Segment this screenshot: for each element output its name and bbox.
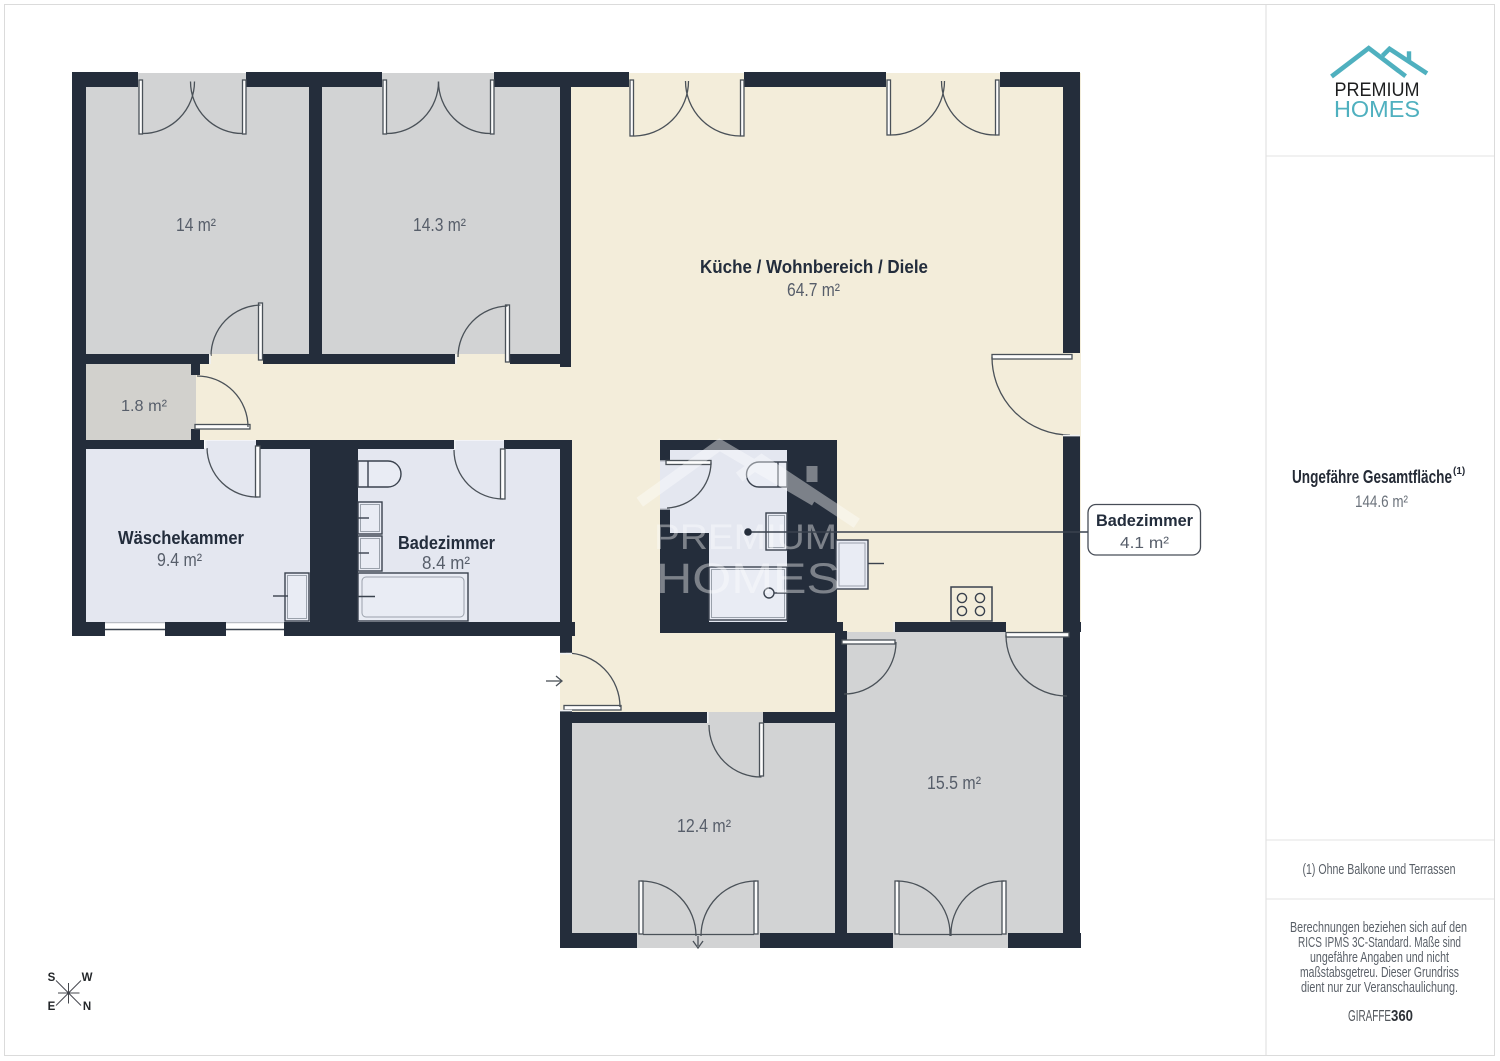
svg-text:12.4 m²: 12.4 m²	[677, 816, 731, 836]
svg-text:4.1 m²: 4.1 m²	[1120, 535, 1170, 552]
svg-text:ungefähre Angaben und nicht: ungefähre Angaben und nicht	[1310, 950, 1449, 966]
svg-text:dient nur zur Veranschaulichun: dient nur zur Veranschaulichung.	[1301, 980, 1458, 996]
svg-text:Berechnungen beziehen sich auf: Berechnungen beziehen sich auf den	[1290, 920, 1467, 936]
svg-text:Küche / Wohnbereich / Diele: Küche / Wohnbereich / Diele	[700, 256, 928, 277]
svg-text:HOMES: HOMES	[1334, 96, 1420, 122]
svg-text:(1) Ohne Balkone und Terrassen: (1) Ohne Balkone und Terrassen	[1303, 861, 1456, 878]
svg-text:Badezimmer: Badezimmer	[1096, 511, 1193, 530]
svg-text:144.6 m²: 144.6 m²	[1355, 492, 1408, 511]
svg-text:64.7 m²: 64.7 m²	[787, 280, 840, 300]
svg-text:360: 360	[1391, 1008, 1413, 1025]
svg-text:Ungefähre Gesamtfläche: Ungefähre Gesamtfläche	[1292, 467, 1452, 487]
svg-text:9.4 m²: 9.4 m²	[157, 550, 202, 570]
svg-text:(1): (1)	[1453, 466, 1465, 477]
svg-text:Wäschekammer: Wäschekammer	[118, 527, 244, 548]
svg-text:W: W	[82, 972, 93, 984]
svg-text:maßstabsgetreu. Dieser Grundri: maßstabsgetreu. Dieser Grundriss	[1300, 965, 1459, 981]
svg-text:PREMIUM: PREMIUM	[654, 518, 837, 557]
svg-text:Badezimmer: Badezimmer	[398, 532, 495, 553]
svg-text:N: N	[83, 1001, 91, 1013]
svg-text:E: E	[48, 1001, 56, 1013]
svg-text:15.5 m²: 15.5 m²	[927, 773, 981, 793]
svg-text:S: S	[48, 972, 56, 984]
svg-text:1.8 m²: 1.8 m²	[121, 398, 168, 415]
svg-text:8.4 m²: 8.4 m²	[422, 553, 470, 573]
svg-text:14.3 m²: 14.3 m²	[413, 215, 466, 235]
svg-text:HOMES: HOMES	[656, 555, 840, 603]
svg-text:14 m²: 14 m²	[176, 215, 216, 235]
svg-text:GIRAFFE: GIRAFFE	[1348, 1008, 1391, 1025]
svg-text:RICS IPMS 3C-Standard. Maße si: RICS IPMS 3C-Standard. Maße sind	[1298, 935, 1461, 951]
